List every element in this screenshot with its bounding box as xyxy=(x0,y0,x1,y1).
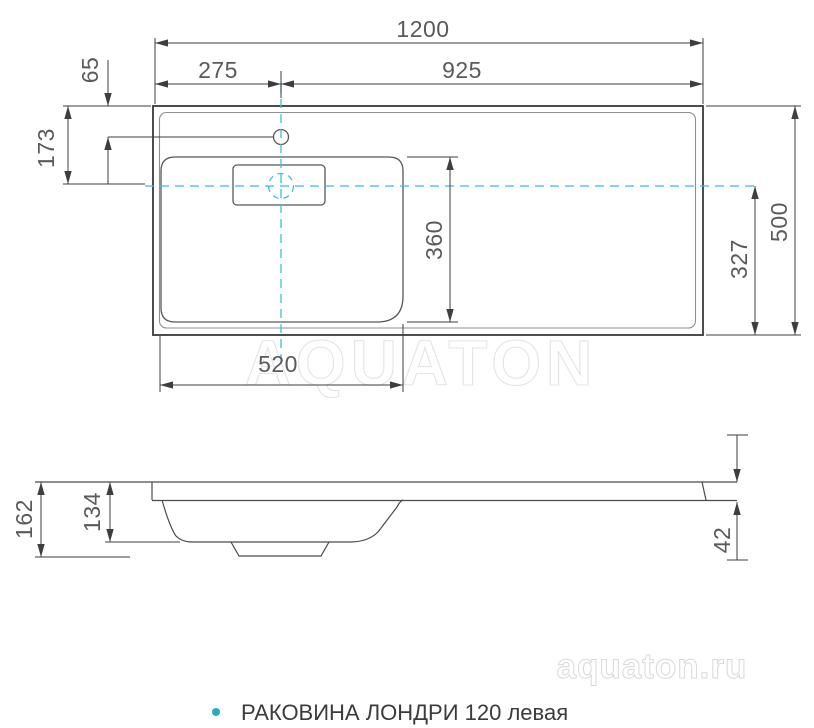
dim-label-360: 360 xyxy=(421,220,447,260)
dim-label-162: 162 xyxy=(11,499,37,539)
bullet-icon xyxy=(212,708,220,716)
sink-dimension-drawing: AQUATON aquaton.ru xyxy=(0,0,814,728)
dim-label-500: 500 xyxy=(766,202,792,242)
profile-bowl-outline xyxy=(162,500,403,542)
product-title: РАКОВИНА ЛОНДРИ 120 левая xyxy=(241,700,568,725)
top-view xyxy=(108,106,703,335)
side-view-dimension-labels: 162 134 42 xyxy=(11,492,735,553)
dim-label-173: 173 xyxy=(33,128,59,168)
dim-label-520: 520 xyxy=(258,351,298,377)
side-view xyxy=(35,482,737,556)
footer: РАКОВИНА ЛОНДРИ 120 левая xyxy=(212,700,568,725)
dim-label-275: 275 xyxy=(198,57,238,83)
dim-label-925: 925 xyxy=(442,57,482,83)
corner-watermark: aquaton.ru xyxy=(557,647,748,686)
dim-label-65: 65 xyxy=(77,57,103,84)
profile-drain-boss xyxy=(231,542,329,556)
dim-label-42: 42 xyxy=(709,527,735,554)
technical-drawing-page: AQUATON aquaton.ru xyxy=(0,0,814,728)
dim-label-1200: 1200 xyxy=(396,16,449,42)
profile-right-edge-tick xyxy=(702,482,706,500)
side-view-dimensions xyxy=(35,435,748,560)
dim-label-134: 134 xyxy=(79,492,105,532)
dim-label-327: 327 xyxy=(726,239,752,279)
